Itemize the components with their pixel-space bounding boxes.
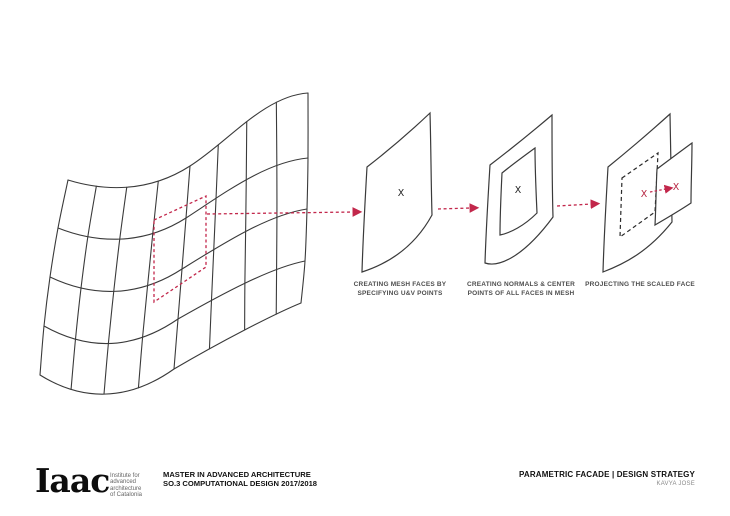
mesh-line — [68, 93, 308, 188]
mesh-line — [245, 122, 247, 330]
flow-arrow-3 — [557, 204, 592, 206]
flow-arrow-1 — [207, 212, 354, 214]
step-caption-3: PROJECTING THE SCALED FACE — [555, 280, 725, 289]
mesh-line — [209, 145, 218, 349]
slide: X X X X CREATING MESH FACES BY SPECIFYIN… — [0, 0, 730, 516]
scaled-face-dashed-shape — [620, 153, 658, 237]
mesh-line — [40, 303, 301, 394]
wavy-mesh-surface — [40, 93, 308, 394]
caption-line: PROJECTING THE SCALED FACE — [555, 280, 725, 289]
mesh-line — [174, 166, 190, 369]
course-title: MASTER IN ADVANCED ARCHITECTURE SO.3 COM… — [163, 471, 317, 488]
center-point-marker: X — [641, 189, 648, 200]
mesh-line — [301, 93, 308, 303]
highlight-cell — [154, 196, 206, 302]
mesh-line — [71, 186, 96, 389]
iaac-logo: Iaac — [35, 464, 109, 497]
author-name: KAVYA JOSE — [519, 481, 695, 487]
design-strategy-diagram: X X X X — [0, 0, 730, 450]
face-center-marker: X — [515, 185, 522, 196]
flow-arrow-2 — [438, 208, 471, 209]
mesh-line — [138, 181, 158, 388]
mesh-line — [50, 209, 307, 291]
logo-subtitle-line: of Catalonia — [110, 492, 142, 498]
project-block: PARAMETRIC FACADE | DESIGN STRATEGY KAVY… — [519, 470, 695, 487]
projected-point-marker: X — [673, 182, 680, 193]
project-title: PARAMETRIC FACADE | DESIGN STRATEGY — [519, 470, 695, 479]
mesh-line — [40, 180, 68, 375]
caption-line: POINTS OF ALL FACES IN MESH — [436, 289, 606, 298]
face-center-marker: X — [398, 188, 405, 199]
mesh-line — [276, 102, 277, 314]
iaac-logo-subtitle: Institute for advanced architecture of C… — [110, 473, 142, 499]
course-line: SO.3 COMPUTATIONAL DESIGN 2017/2018 — [163, 480, 317, 489]
